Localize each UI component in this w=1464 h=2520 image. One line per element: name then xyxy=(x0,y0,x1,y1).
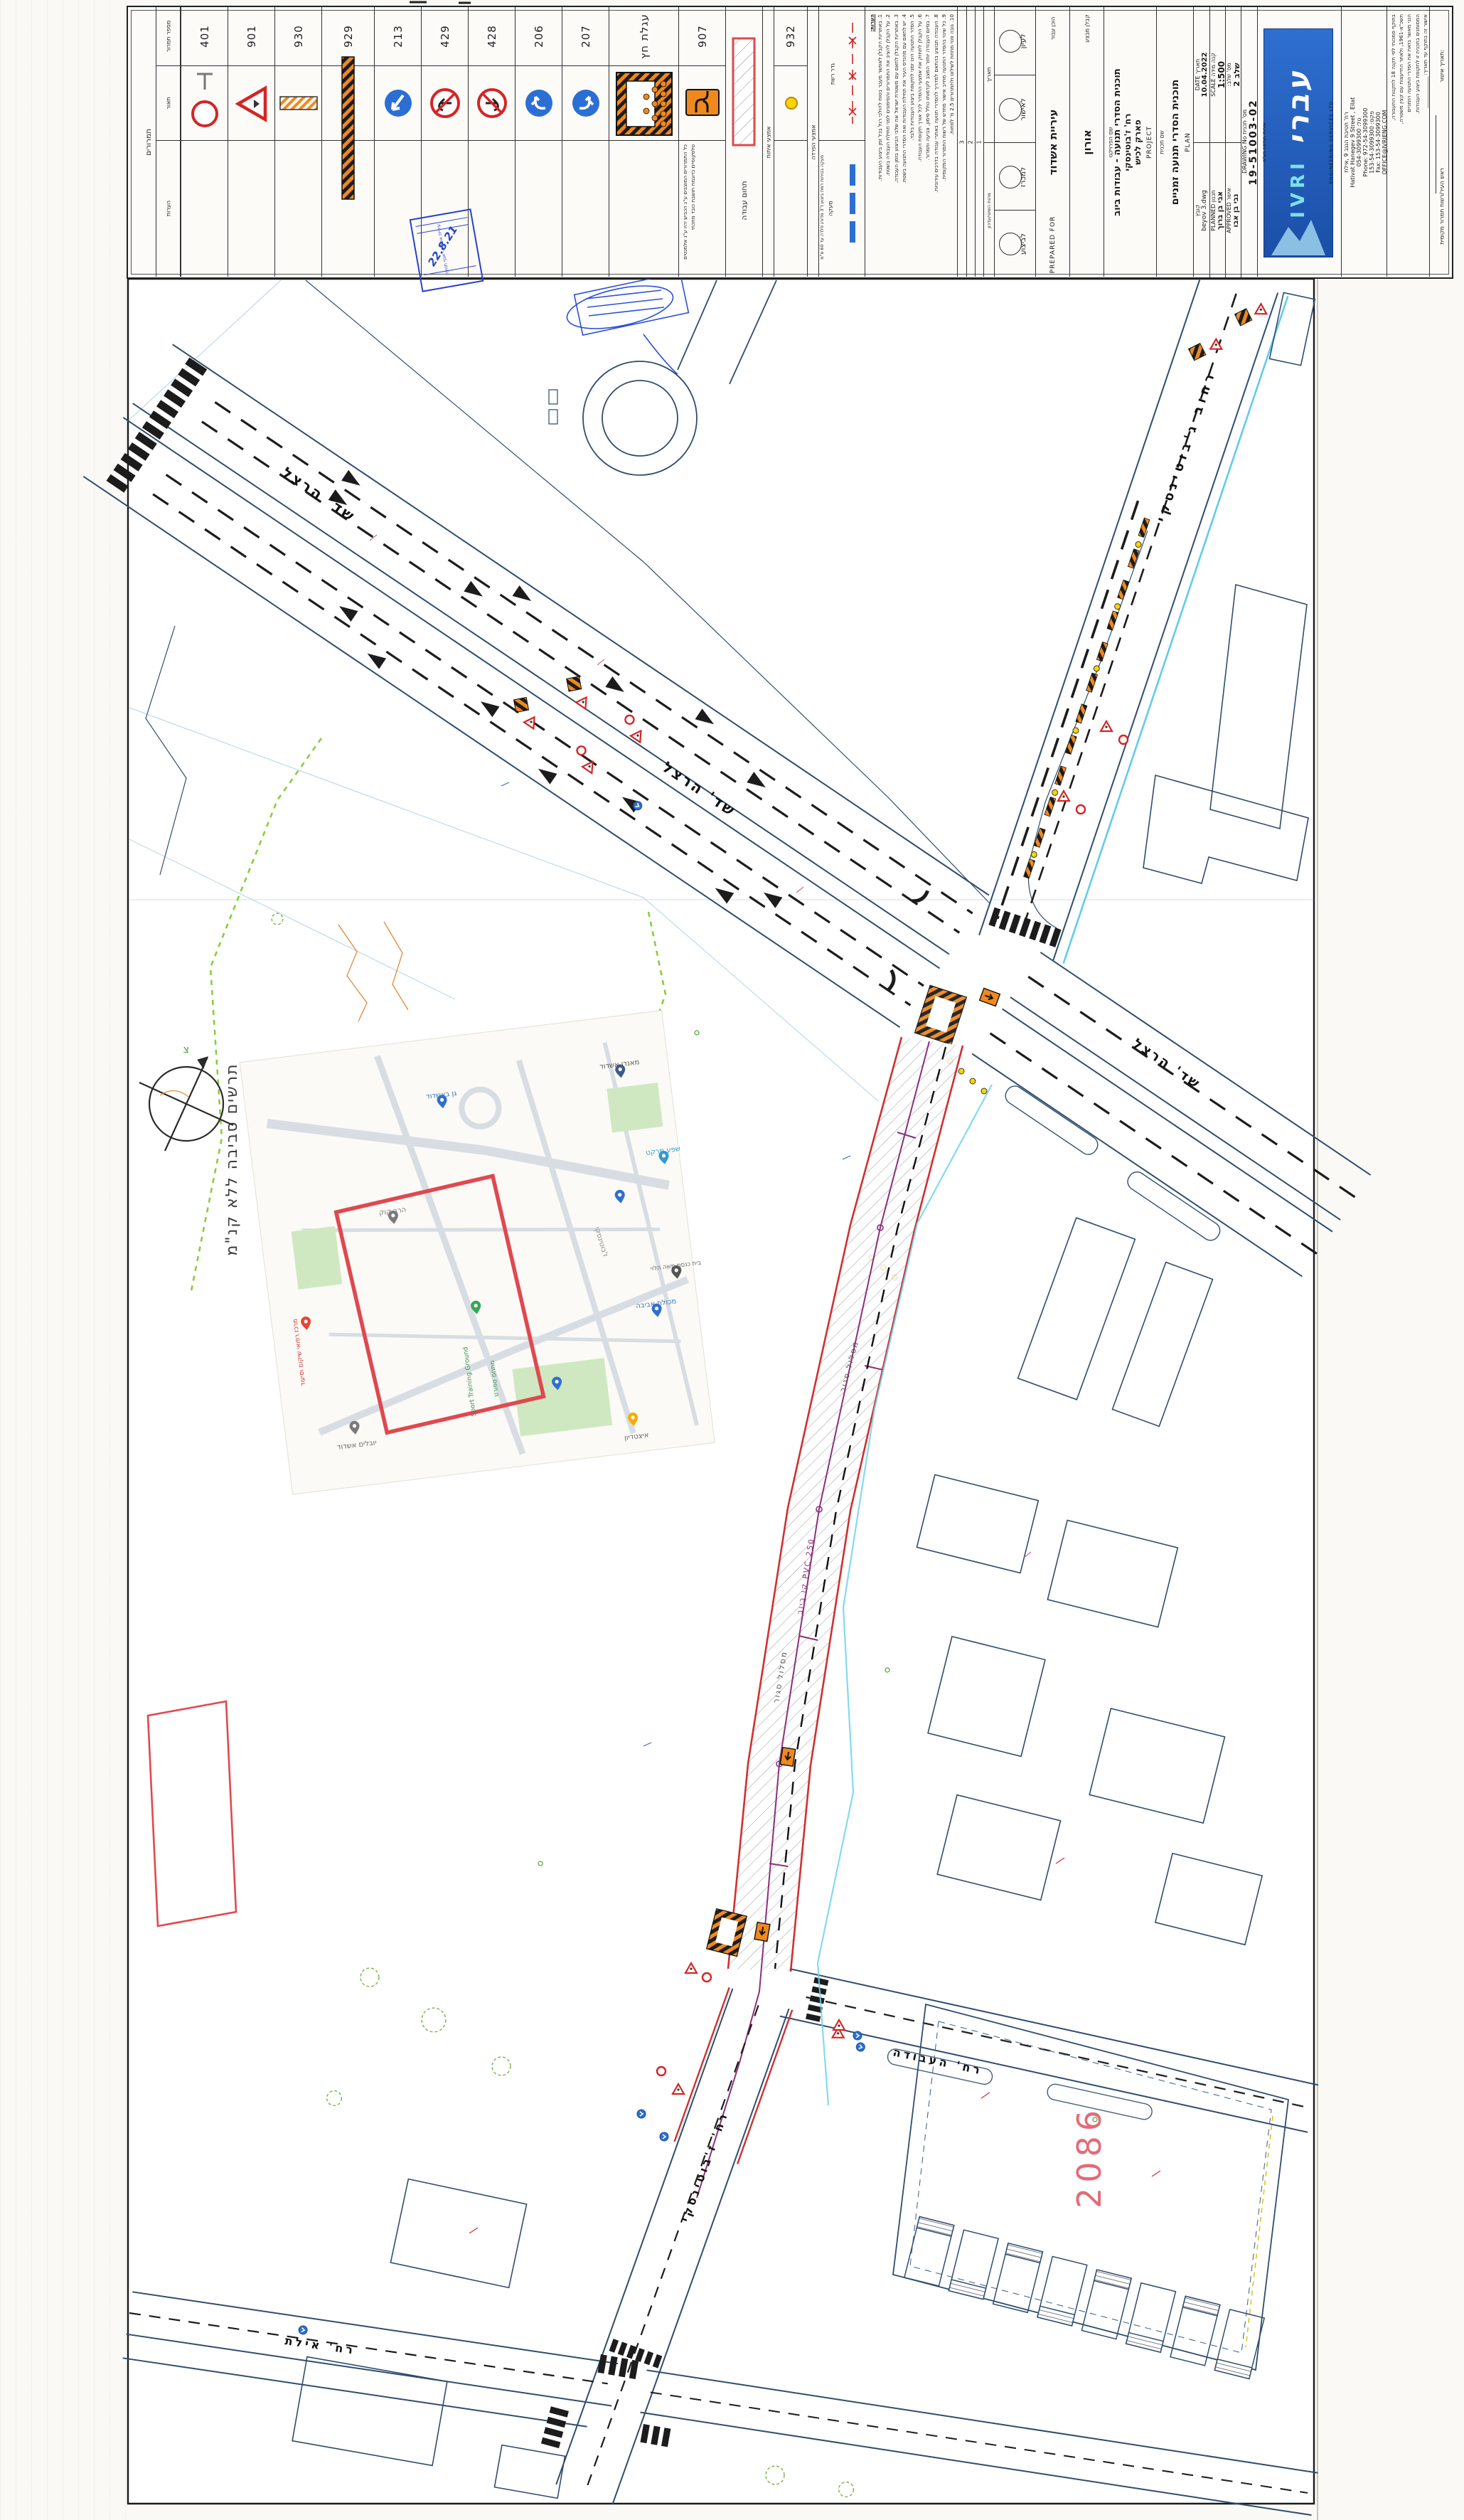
work-area-hatch-icon xyxy=(730,36,759,149)
parcel-number-label: 2086 xyxy=(1070,2105,1108,2208)
fence-label: גדר רשת xyxy=(830,63,836,84)
signs-section-title: תמרורים xyxy=(144,128,153,155)
rail-note: מעקה בטיחות רמת ביצוע ד'3 מדורג פלדה עד … xyxy=(818,155,837,262)
legal-text: בתוקף סמכותי לפי תקנה 18 לתקנות התעבורה,… xyxy=(1386,7,1429,277)
site-plan-map: 2086 xyxy=(0,0,1464,2520)
signs-header-number: מספר תמרור xyxy=(165,21,171,53)
sign-213-icon xyxy=(382,87,415,119)
general-notes: הערות: 1. באחריות הקבלן לאפשר מעבר בטוח … xyxy=(868,14,955,270)
contractor: קבלן מבצע אורון xyxy=(1069,7,1104,277)
signs-note: כל התמרורים המוצבים ע"ג הכביש יהיו ע"ג א… xyxy=(681,144,724,272)
project-title: שם הפרויקט תוכנית הסדרי תנועה - עבודות ב… xyxy=(1104,7,1156,277)
inset-location-map: גן באשדוד מאנדו אשדוד שפע מרקט הרב קוק ז… xyxy=(240,1009,723,1494)
sign-929-icon xyxy=(338,54,359,203)
prepared-for: הוכן עבור עיריית אשדוד PREPARED FOR xyxy=(1035,7,1069,277)
plan-title: שם תכנית תוכנית הסדרי תנועה זמניים PLAN xyxy=(1156,7,1193,277)
client-name: עיריית אשדוד xyxy=(1047,109,1059,175)
signature-strip: תאריך אישור: ראש העיר/רשות תמרור מקומית xyxy=(1429,7,1453,277)
approval-options: לעיון לאישור למכרז לביצוע xyxy=(994,7,1035,277)
guardrail-icon xyxy=(846,161,859,247)
lion-logo-icon xyxy=(1264,207,1332,257)
drawing-info: תאריך DATE 10.04.2022 קובץ beyov 3.dwg ק… xyxy=(1193,7,1257,277)
firm-block: עברי IVRI ENGINEERING SERVICES LTD שירות… xyxy=(1257,7,1341,277)
arrow-board-trailer-icon xyxy=(614,70,675,138)
sign-number: 401 xyxy=(198,25,211,48)
work-area-label: תחום עבודה xyxy=(740,181,749,220)
municipal-stamp: עיריית אשדוד - אגף תנועה 22.8.21 xyxy=(410,208,484,292)
sign-401-icon xyxy=(187,70,223,138)
sign-207-icon xyxy=(570,87,602,119)
title-block: תמרורים מספר תמרור תאור הערות 401 901 xyxy=(127,6,1453,279)
separation-title: אמצעי הפרדה xyxy=(810,124,816,159)
sign-429-icon xyxy=(429,87,461,119)
inset-title: תרשים סביבה ללא קנ"מ xyxy=(223,1063,241,1255)
sign-907-icon xyxy=(683,87,722,118)
sign-428-icon xyxy=(476,87,508,119)
svg-text:צ: צ xyxy=(183,1043,190,1056)
blinker-lamp-icon xyxy=(781,92,802,114)
sign-901-icon xyxy=(233,83,271,125)
ivri-logo: עברי IVRI xyxy=(1263,28,1333,257)
revision-table: 3 2 1 תאריך מהות השינוי/עדכון xyxy=(957,7,994,277)
sign-930-icon xyxy=(277,90,320,118)
contractor-name: אורון xyxy=(1081,129,1094,154)
signs-header-notes: הערות xyxy=(165,201,171,216)
sign-206-icon xyxy=(523,87,555,119)
mesh-fence-icon xyxy=(845,20,860,127)
scanned-traffic-plan-sheet: 2086 xyxy=(0,0,1464,2520)
firm-contact: רח' חטיבת הנגב 9 ,אילת Hativat Hanegev 9… xyxy=(1341,7,1386,277)
signaling-title: אמצעי איתות xyxy=(765,126,771,158)
signs-header-drawing: תאור xyxy=(165,97,171,109)
